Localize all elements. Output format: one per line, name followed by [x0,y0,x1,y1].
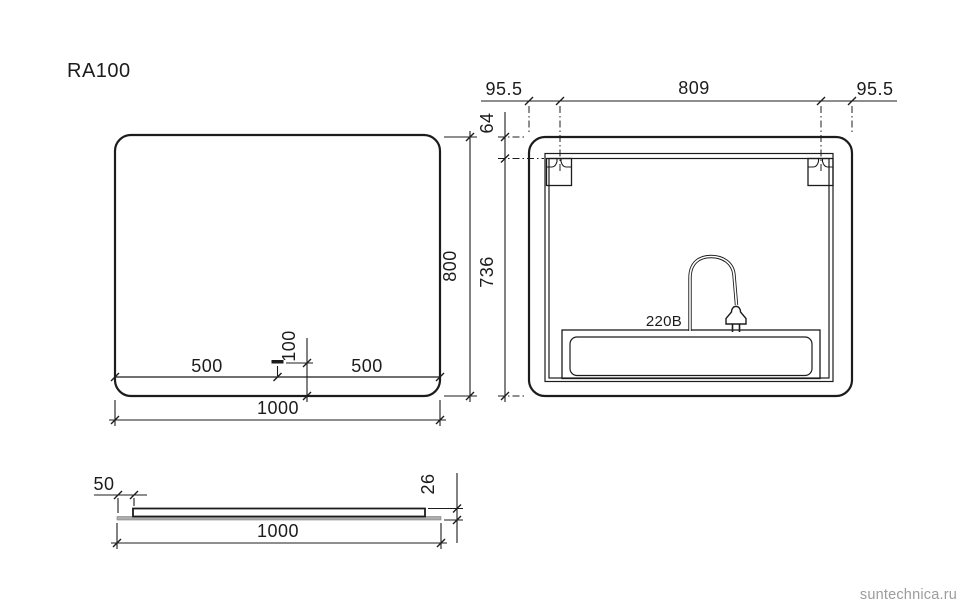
dim-side-width: 1000 [257,521,299,541]
dim-bracket-span: 809 [678,78,710,98]
dim-front-left-segment: 500 [191,356,223,376]
side-view: 50 26 1000 [93,473,463,549]
power-plug-icon [726,306,746,332]
back-frame-inner [549,159,829,379]
dim-front-height: 800 [440,250,460,282]
voltage-label: 220В [646,313,682,330]
dim-top-offset: 64 [477,112,497,133]
back-frame-outer [545,154,833,382]
power-cord-highlight [690,257,737,332]
dim-left-margin: 95.5 [485,79,522,99]
driver-box-inner [570,337,812,376]
dim-thickness: 26 [418,473,438,494]
mirror-front-outline [115,135,440,396]
dim-edge-inset: 50 [93,474,114,494]
dim-front-width: 1000 [257,398,299,418]
back-view: 220В 95.5 809 95.5 64 736 [477,78,897,402]
dim-front-right-segment: 500 [351,356,383,376]
model-title: RA100 [67,60,131,82]
side-backing-body [133,509,425,517]
bracket-centerlines [529,106,852,174]
watermark: suntechnica.ru [860,587,957,603]
power-cord [690,257,737,332]
mounting-bracket-left [547,159,572,186]
technical-drawing-page: RA100 500 500 100 800 1000 [0,0,970,607]
dim-sensor-offset: 100 [279,330,299,362]
dim-bottom-span: 736 [477,256,497,288]
dim-inset-lines [94,495,147,513]
front-view: 500 500 100 800 1000 [109,131,477,426]
dim-right-margin: 95.5 [856,79,893,99]
